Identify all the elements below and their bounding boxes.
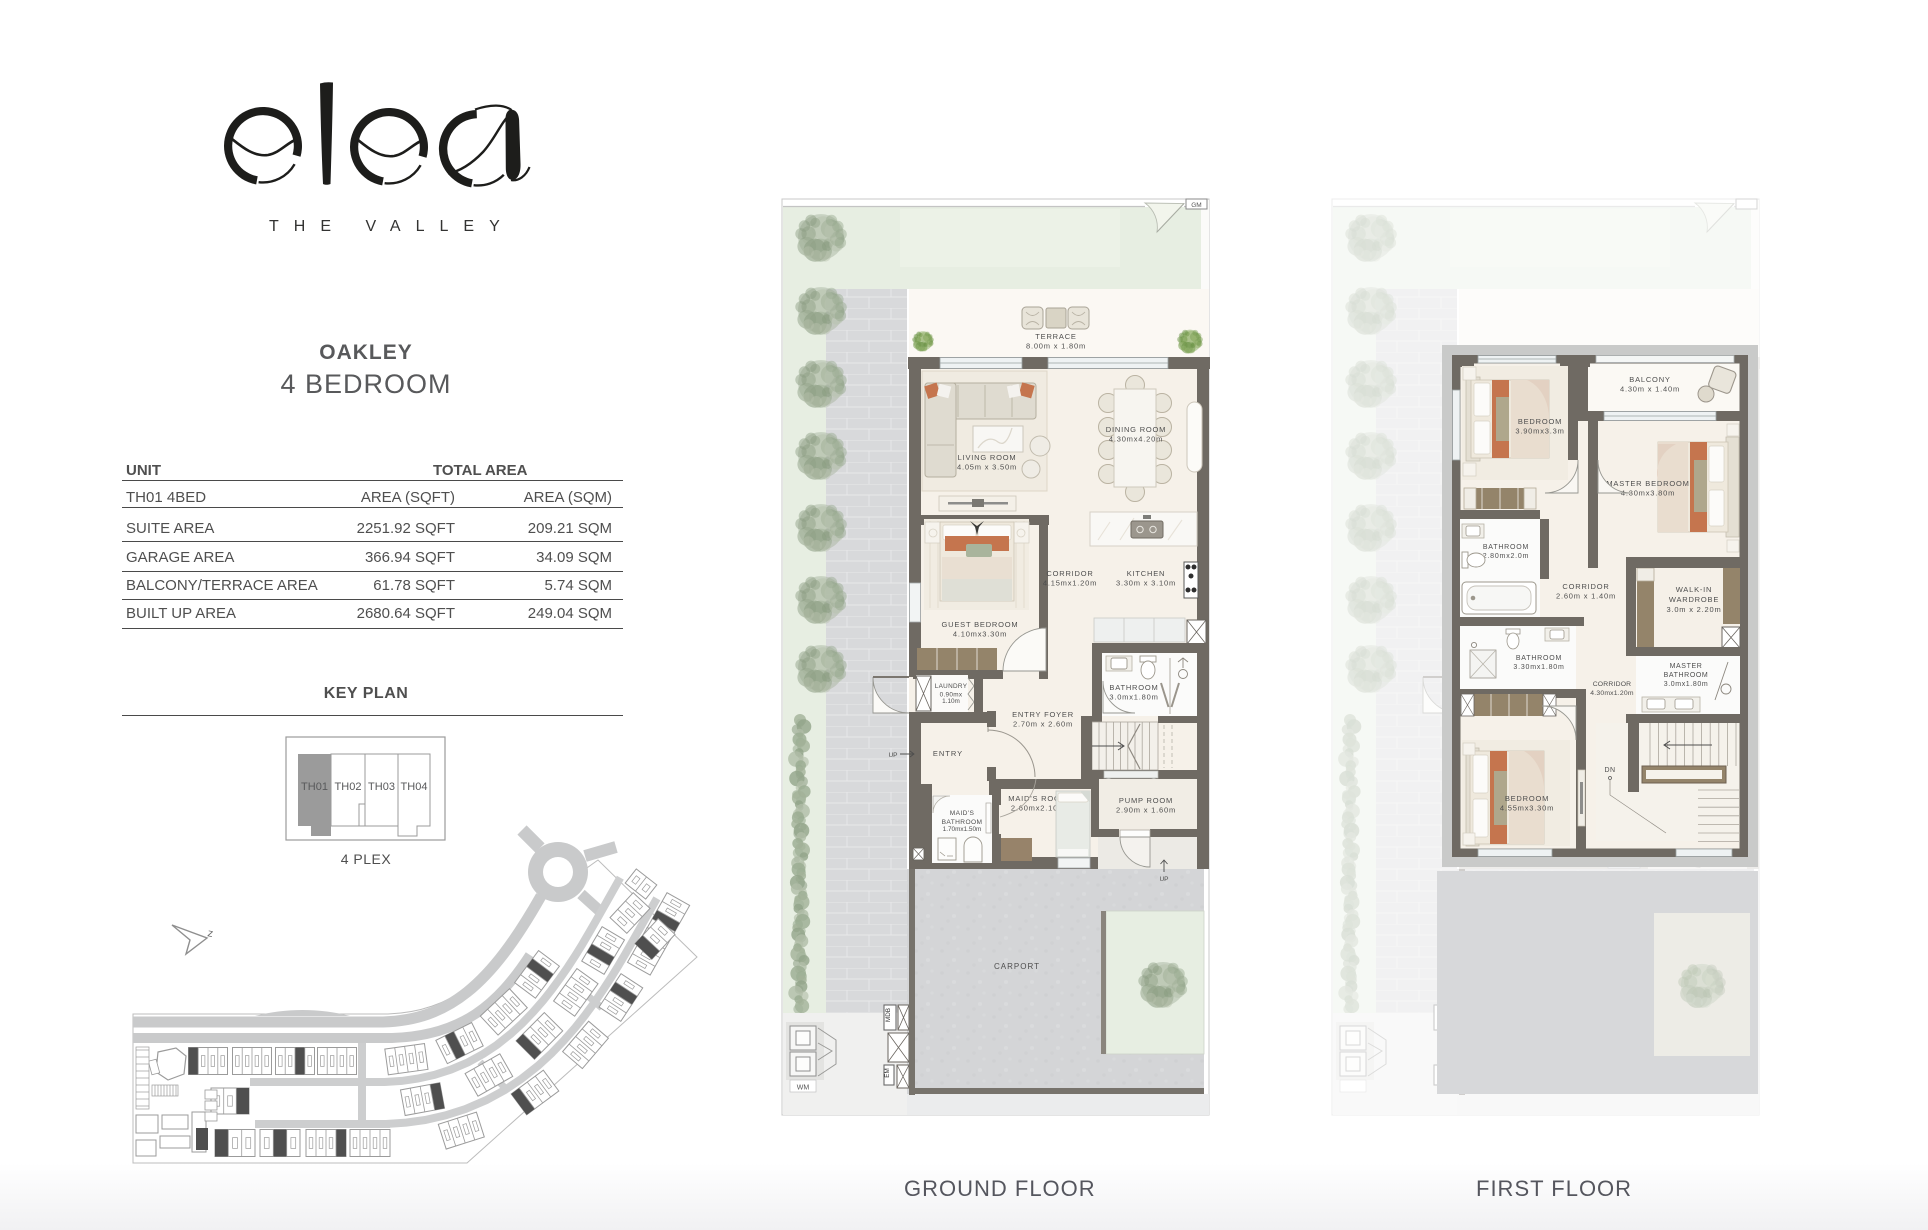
svg-text:BATHROOM: BATHROOM [1516,655,1562,662]
svg-text:3.0m x 2.20m: 3.0m x 2.20m [1666,605,1721,614]
svg-text:4.30mx1.20m: 4.30mx1.20m [1590,690,1634,697]
svg-text:ENTRY: ENTRY [933,749,963,758]
svg-text:BATHROOM: BATHROOM [1664,672,1709,679]
svg-text:4.30m x 1.40m: 4.30m x 1.40m [1620,385,1680,394]
svg-text:CARPORT: CARPORT [994,962,1040,971]
svg-text:MAID'S: MAID'S [950,810,975,817]
svg-text:WALK-IN: WALK-IN [1676,585,1713,594]
svg-text:MDB: MDB [885,1008,892,1022]
svg-text:EM: EM [884,1068,891,1077]
svg-text:TH02: TH02 [335,781,362,793]
svg-text:DN: DN [1604,767,1615,774]
svg-text:KITCHEN: KITCHEN [1127,569,1166,578]
svg-text:GM: GM [1191,202,1201,209]
svg-text:TH03: TH03 [368,781,395,793]
svg-text:DINING ROOM: DINING ROOM [1106,425,1166,434]
svg-text:3.0mx1.80m: 3.0mx1.80m [1664,681,1709,688]
svg-text:MASTER: MASTER [1670,663,1703,670]
svg-text:3.30mx1.80m: 3.30mx1.80m [1513,664,1564,671]
svg-text:BALCONY: BALCONY [1629,375,1670,384]
svg-text:LAUNDRY: LAUNDRY [935,683,968,690]
svg-text:4.55mx3.30m: 4.55mx3.30m [1500,804,1554,813]
svg-text:BEDROOM: BEDROOM [1505,794,1549,803]
svg-text:3.90mx3.3m: 3.90mx3.3m [1515,427,1564,436]
svg-text:1.70mx1.50m: 1.70mx1.50m [943,826,982,833]
svg-text:UP: UP [888,752,897,759]
svg-text:ENTRY FOYER: ENTRY FOYER [1012,710,1074,719]
svg-text:TH01: TH01 [301,781,328,793]
svg-text:3.30m x 3.10m: 3.30m x 3.10m [1116,579,1176,588]
svg-text:4.10mx3.30m: 4.10mx3.30m [953,630,1007,639]
svg-text:3.0mx1.80m: 3.0mx1.80m [1109,693,1158,702]
svg-text:CORRIDOR: CORRIDOR [1562,582,1609,591]
svg-text:LIVING ROOM: LIVING ROOM [958,453,1017,462]
svg-text:BATHROOM: BATHROOM [1483,544,1529,551]
svg-text:WARDROBE: WARDROBE [1669,595,1719,604]
svg-text:8.00m x 1.80m: 8.00m x 1.80m [1026,342,1086,351]
svg-text:2.70m x 2.60m: 2.70m x 2.60m [1013,720,1073,729]
svg-text:2.80mx2.0m: 2.80mx2.0m [1483,553,1530,560]
svg-text:2.90m x 1.60m: 2.90m x 1.60m [1116,806,1176,815]
svg-text:PUMP ROOM: PUMP ROOM [1119,796,1173,805]
svg-text:4.15mx1.20m: 4.15mx1.20m [1043,579,1097,588]
svg-text:WM: WM [797,1085,810,1092]
svg-text:CORRIDOR: CORRIDOR [1593,681,1632,688]
svg-text:UP: UP [1159,876,1168,883]
svg-text:4.05m x 3.50m: 4.05m x 3.50m [957,463,1017,472]
svg-text:TERRACE: TERRACE [1035,332,1076,341]
svg-text:4.30mx4.20m: 4.30mx4.20m [1109,435,1163,444]
svg-text:BEDROOM: BEDROOM [1518,417,1562,426]
svg-text:CORRIDOR: CORRIDOR [1046,569,1093,578]
svg-text:TH04: TH04 [401,781,428,793]
svg-text:MASTER BEDROOM: MASTER BEDROOM [1606,479,1689,488]
svg-text:GUEST BEDROOM: GUEST BEDROOM [942,620,1019,629]
svg-text:1.10m: 1.10m [942,698,960,705]
svg-text:BATHROOM: BATHROOM [942,819,983,826]
svg-text:4 PLEX: 4 PLEX [341,851,392,867]
svg-text:z: z [206,927,214,940]
svg-text:2.60m x 1.40m: 2.60m x 1.40m [1556,592,1616,601]
svg-text:BATHROOM: BATHROOM [1109,683,1158,692]
